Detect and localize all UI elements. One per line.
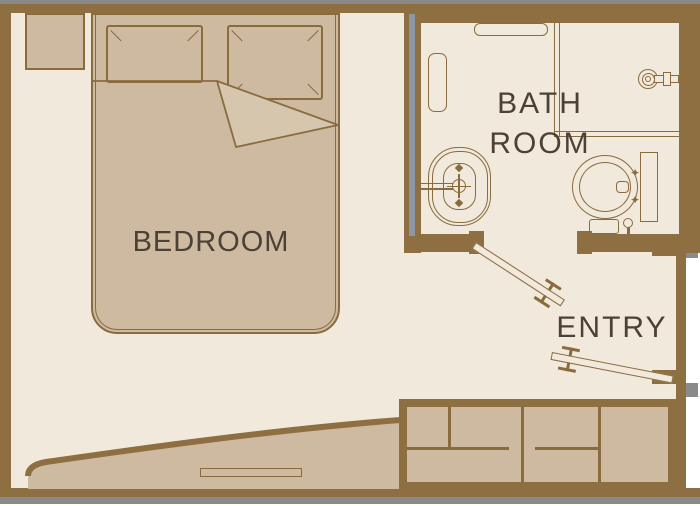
toilet-base: [589, 219, 619, 234]
wall-accent-strip: [409, 14, 415, 236]
sparkle-icon: ✦: [630, 194, 640, 206]
bed: [91, 13, 340, 334]
wardrobe-divider: [521, 407, 524, 482]
wardrobe-divider: [407, 447, 509, 450]
bathroom-label: BATH ROOM: [425, 84, 655, 164]
wall-top-bathroom: [404, 4, 700, 23]
wardrobe-divider: [448, 407, 451, 447]
basin-supply-line: [420, 183, 453, 185]
blanket-fold: [91, 13, 340, 334]
wardrobe-divider: [535, 447, 599, 450]
entry-label: ENTRY: [541, 311, 683, 345]
basin-supply-line: [420, 188, 453, 190]
bench-chaise: [20, 412, 400, 490]
water-valve-stem: [627, 227, 630, 234]
bedroom-label: BEDROOM: [86, 226, 336, 259]
wall-top: [0, 4, 420, 13]
shower-head-icon: [645, 76, 651, 82]
wardrobe: [399, 399, 676, 490]
floor-plan: ✦ ✦ BEDROOM BATH ROOM ENTRY: [0, 0, 700, 506]
bathroom-label-line1: BATH: [425, 84, 655, 124]
sparkle-icon: ✦: [630, 167, 640, 179]
basin-tap: [452, 179, 466, 193]
towel-rail-top: [474, 23, 548, 36]
nightstand: [25, 13, 85, 70]
bathroom-door-jamb-right: [577, 231, 592, 254]
entry-door-jamb-top: [652, 243, 686, 256]
shadow-bottom: [0, 497, 700, 504]
wall-bathroom-right: [679, 4, 700, 253]
toilet-flush-button: [616, 181, 629, 193]
shower-arm-joint: [663, 72, 671, 86]
wardrobe-divider: [598, 407, 601, 482]
bathroom-label-line2: ROOM: [425, 124, 655, 164]
wall-left: [0, 4, 11, 497]
bench-drawer-handle: [200, 468, 302, 477]
shadow-right-lower: [686, 383, 698, 397]
